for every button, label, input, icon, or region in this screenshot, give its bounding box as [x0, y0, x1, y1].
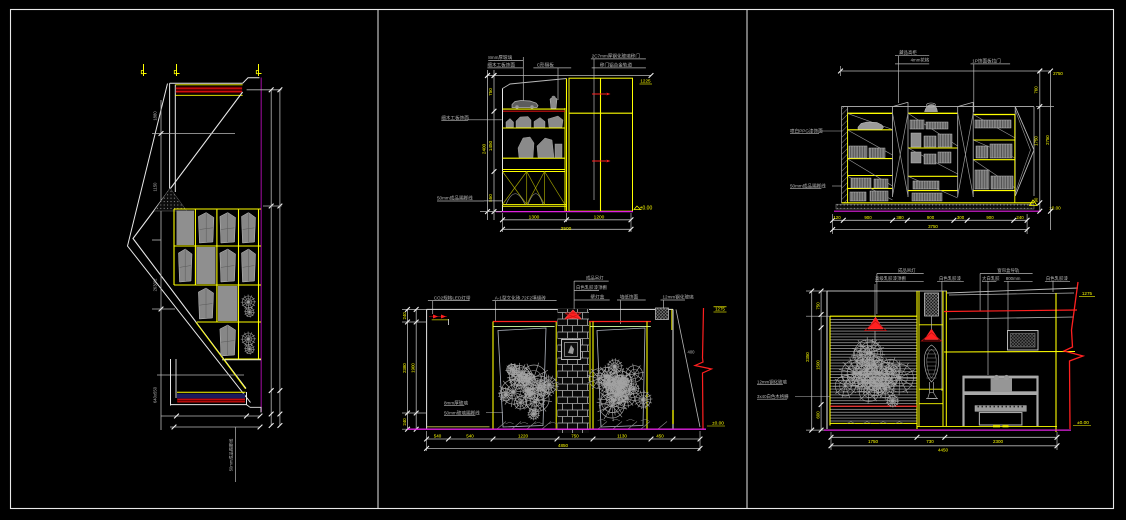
svg-text:±0.00: ±0.00 — [712, 421, 724, 427]
svg-text:380: 380 — [896, 215, 904, 220]
svg-text:细木工板饰面: 细木工板饰面 — [487, 62, 515, 69]
svg-text:4450: 4450 — [938, 447, 949, 452]
svg-text:400: 400 — [688, 350, 696, 355]
svg-text:120: 120 — [833, 215, 841, 220]
svg-text:600: 600 — [815, 411, 820, 419]
svg-text:2380: 2380 — [402, 363, 407, 373]
svg-text:750: 750 — [815, 302, 820, 310]
svg-text:窗帘盒导轨: 窗帘盒导轨 — [997, 267, 1020, 274]
svg-text:1200: 1200 — [594, 214, 605, 220]
svg-text:1880: 1880 — [153, 111, 158, 121]
svg-text:2C7mm厚钢化玻璃移门: 2C7mm厚钢化玻璃移门 — [592, 53, 641, 60]
svg-text:墙纸饰面: 墙纸饰面 — [620, 294, 639, 301]
svg-text:240: 240 — [1016, 215, 1024, 220]
svg-text:移门铝合金轨道: 移门铝合金轨道 — [600, 62, 633, 69]
svg-text:50mm成品踢脚线: 50mm成品踢脚线 — [437, 195, 473, 202]
svg-text:成品吊灯: 成品吊灯 — [586, 275, 604, 282]
svg-text:1750: 1750 — [868, 439, 879, 444]
svg-text:4mm花格: 4mm花格 — [911, 57, 930, 64]
svg-text:2750: 2750 — [1053, 71, 1063, 76]
svg-text:2750: 2750 — [1045, 135, 1050, 145]
svg-text:760: 760 — [1033, 86, 1038, 94]
svg-text:900: 900 — [864, 215, 872, 220]
svg-text:90: 90 — [1033, 197, 1038, 202]
svg-text:细木工板饰面: 细木工板饰面 — [441, 114, 469, 121]
svg-text:540: 540 — [434, 434, 442, 439]
svg-text:730: 730 — [926, 439, 934, 444]
svg-text:±0.00: ±0.00 — [1049, 206, 1061, 211]
svg-text:1225: 1225 — [640, 79, 651, 84]
svg-text:C形隔板: C形隔板 — [537, 62, 555, 69]
svg-text:240: 240 — [402, 312, 407, 320]
svg-text:50mm成品踢脚线: 50mm成品踢脚线 — [228, 438, 235, 471]
svg-text:1220: 1220 — [518, 434, 529, 439]
svg-text:3750: 3750 — [928, 224, 938, 229]
svg-text:1450: 1450 — [488, 140, 493, 151]
svg-text:±0.00: ±0.00 — [1077, 420, 1089, 426]
svg-text:±0.00: ±0.00 — [640, 206, 653, 212]
svg-text:640x550: 640x550 — [153, 386, 158, 403]
svg-text:900: 900 — [927, 215, 935, 220]
svg-text:藏品高柜: 藏品高柜 — [899, 49, 917, 56]
svg-text:1275: 1275 — [1082, 291, 1093, 296]
svg-text:900: 900 — [986, 215, 994, 220]
svg-text:白色乳胶漆顶棚: 白色乳胶漆顶棚 — [576, 284, 607, 291]
svg-text:12mm钢化玻璃: 12mm钢化玻璃 — [663, 294, 695, 301]
svg-text:成品吊灯: 成品吊灯 — [898, 267, 916, 274]
svg-text:240: 240 — [402, 418, 407, 426]
svg-text:450: 450 — [656, 434, 664, 439]
svg-text:800mm: 800mm — [1006, 276, 1021, 281]
svg-text:1130: 1130 — [617, 434, 627, 439]
svg-text:1275: 1275 — [715, 307, 725, 312]
svg-text:1150: 1150 — [153, 182, 158, 192]
svg-text:2630/2: 2630/2 — [153, 278, 158, 291]
svg-text:540: 540 — [466, 434, 474, 439]
svg-text:1900: 1900 — [411, 363, 416, 373]
svg-text:壁灯盒: 壁灯盒 — [591, 294, 605, 301]
svg-text:2400: 2400 — [482, 143, 487, 154]
svg-text:750: 750 — [571, 434, 579, 439]
svg-text:1300: 1300 — [529, 214, 540, 220]
svg-text:750: 750 — [488, 88, 493, 96]
svg-text:1750: 1750 — [1033, 136, 1038, 146]
svg-text:2300: 2300 — [993, 439, 1004, 444]
svg-text:1500: 1500 — [815, 360, 820, 370]
svg-text:1P饰面板拉门: 1P饰面板拉门 — [972, 57, 1001, 64]
svg-text:8mm厚玻璃: 8mm厚玻璃 — [488, 54, 512, 61]
svg-text:2500: 2500 — [561, 226, 572, 232]
svg-text:300: 300 — [957, 215, 965, 220]
svg-text:4850: 4850 — [558, 443, 569, 448]
svg-text:2350: 2350 — [805, 352, 810, 362]
